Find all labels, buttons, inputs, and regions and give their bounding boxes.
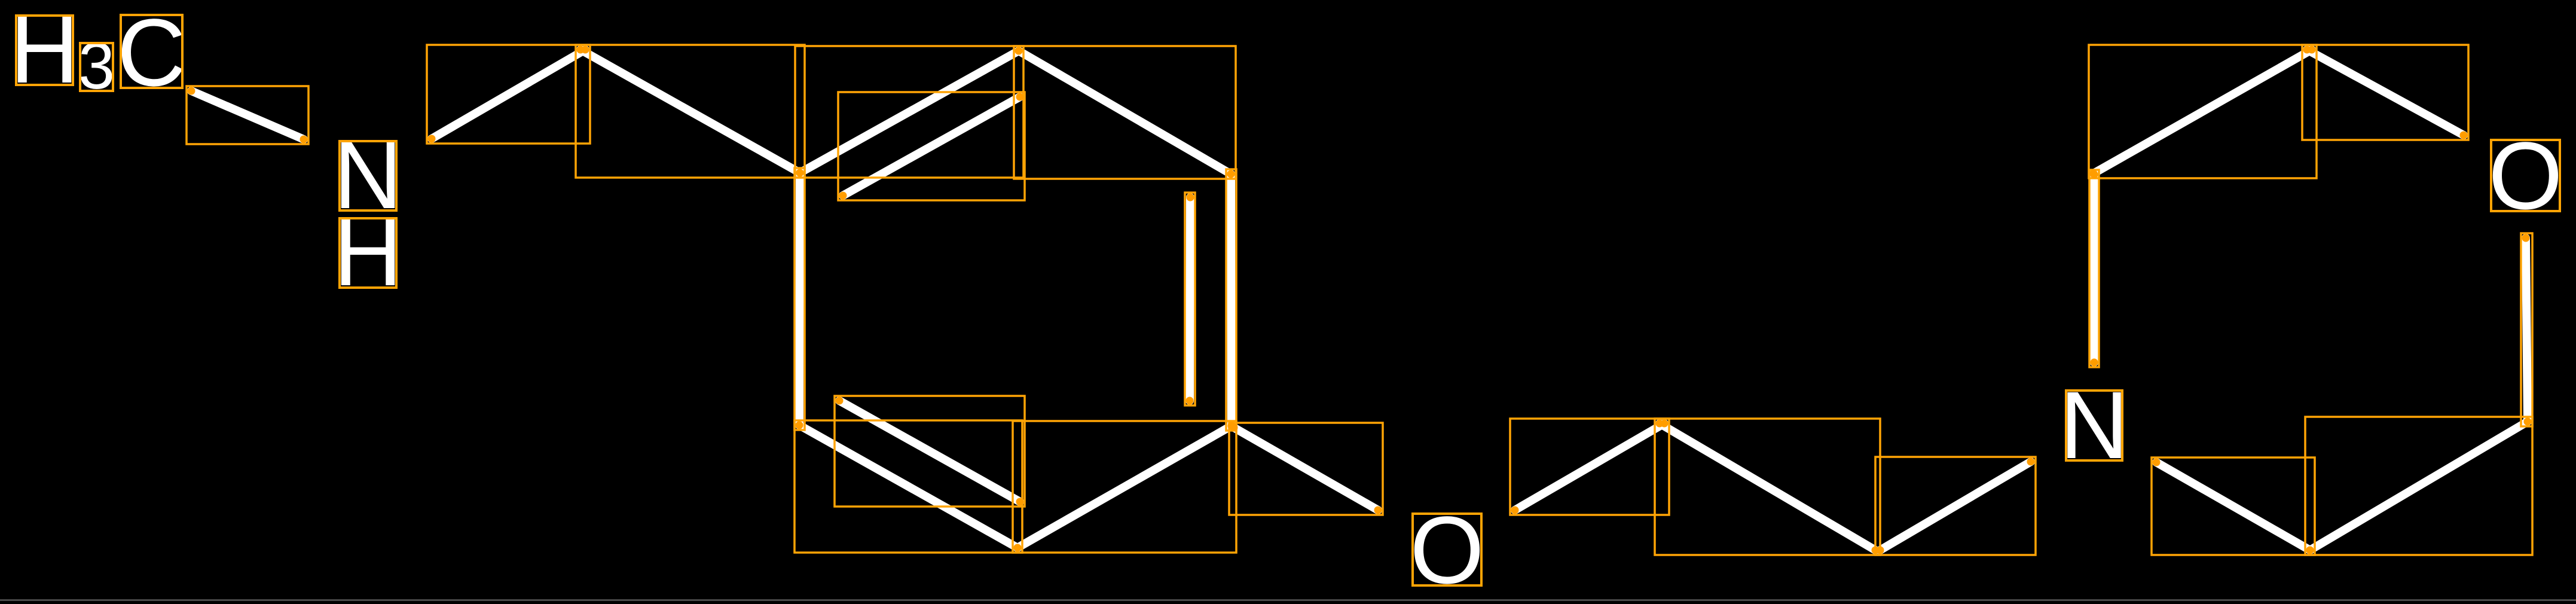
bond-ring-topright-edge-line — [1019, 51, 1231, 174]
bond-ring-bottomleft-edge-endpoint-dot — [796, 422, 803, 429]
bond-ring-to-etherO-line — [1234, 428, 1378, 510]
bond-ch3-to-nh-endpoint-dot — [300, 136, 308, 144]
bond-ring-topleft-inner-endpoint-dot — [839, 192, 847, 200]
bond-etherO-to-ch2-line — [1515, 423, 1664, 510]
bond-ring-right-inner-endpoint-dot — [1187, 194, 1194, 202]
bond-morph-c2-to-O-endpoint-dot — [2303, 46, 2311, 54]
bond-ch2-to-morphN-endpoint-dot — [2027, 458, 2035, 466]
bond-morph-c3-to-c4-endpoint-dot — [2524, 418, 2532, 426]
molecule-structure-svg: H3CNHONO — [0, 0, 2576, 601]
atom-label-morpholine-O: O — [2488, 122, 2562, 229]
bond-morphO-down-vertical-line — [2526, 238, 2528, 422]
bond-ring-topleft-edge-endpoint-dot — [796, 169, 804, 177]
bond-ring-right-edge-line — [1231, 174, 1232, 426]
bond-ring-to-etherO-endpoint-dot — [1230, 424, 1238, 432]
atom-label-morpholine-N: N — [2059, 371, 2129, 478]
bond-etherO-to-ch2-endpoint-dot — [1511, 507, 1519, 514]
bond-ring-topleft-inner-line — [843, 97, 1020, 196]
bond-morph-c1-to-c2-endpoint-dot — [2090, 170, 2098, 178]
bond-drawing-layer: H3CNHONO — [0, 0, 2576, 601]
bond-morph-c1-to-c2-line — [2094, 50, 2312, 173]
bond-ch3-to-nh-line — [191, 91, 304, 139]
bond-morph-c2-to-O-endpoint-dot — [2460, 132, 2468, 139]
bond-ch3-to-nh-endpoint-dot — [188, 87, 195, 95]
bond-ch2-to-ring-line — [580, 50, 800, 173]
bond-morph-c4-to-N-line — [2156, 462, 2310, 550]
bond-ring-right-inner-endpoint-dot — [1186, 397, 1194, 405]
bond-morph-c4-to-N-endpoint-dot — [2306, 547, 2314, 554]
bond-ring-bottomleft-inner-endpoint-dot — [1016, 498, 1024, 506]
bond-nh-to-ch2-line — [432, 50, 585, 139]
bond-ch2-to-ch2-line — [1660, 423, 1875, 550]
atom-label-amine-H: H — [334, 199, 403, 306]
bond-ring-left-edge-line — [799, 173, 800, 425]
bond-ch2-to-morphN-line — [1880, 462, 2031, 550]
bond-morph-c4-to-N-endpoint-dot — [2153, 459, 2161, 466]
bond-ch2-to-ring-endpoint-dot — [577, 46, 585, 54]
bond-ring-topright-edge-endpoint-dot — [1015, 47, 1023, 55]
bond-ring-topleft-inner-endpoint-dot — [1016, 93, 1024, 101]
bond-ring-right-edge-endpoint-dot — [1227, 170, 1235, 178]
molecule-annotation-canvas: H3CNHONO — [0, 0, 2576, 601]
bond-ring-bottomleft-inner-line — [839, 401, 1020, 502]
bond-ch2-to-morphN-endpoint-dot — [1877, 547, 1884, 554]
bond-morph-c2-to-O-line — [2307, 50, 2464, 135]
bond-ring-bottomright-edge-line — [1017, 426, 1232, 548]
bond-nh-to-ch2-endpoint-dot — [428, 135, 436, 143]
bond-morph-c3-to-c4-line — [2310, 422, 2528, 550]
bond-ring-right-inner-line — [1190, 197, 1190, 401]
bond-ring-bottomleft-inner-endpoint-dot — [836, 397, 844, 405]
bond-ch2-to-ch2-endpoint-dot — [1656, 420, 1664, 428]
bond-morphO-down-vertical-endpoint-dot — [2522, 234, 2530, 242]
bond-morphN-up-vertical-endpoint-dot — [2091, 359, 2098, 367]
bond-ring-bottomleft-edge-endpoint-dot — [1014, 544, 1022, 552]
bond-ring-to-etherO-endpoint-dot — [1374, 507, 1382, 514]
